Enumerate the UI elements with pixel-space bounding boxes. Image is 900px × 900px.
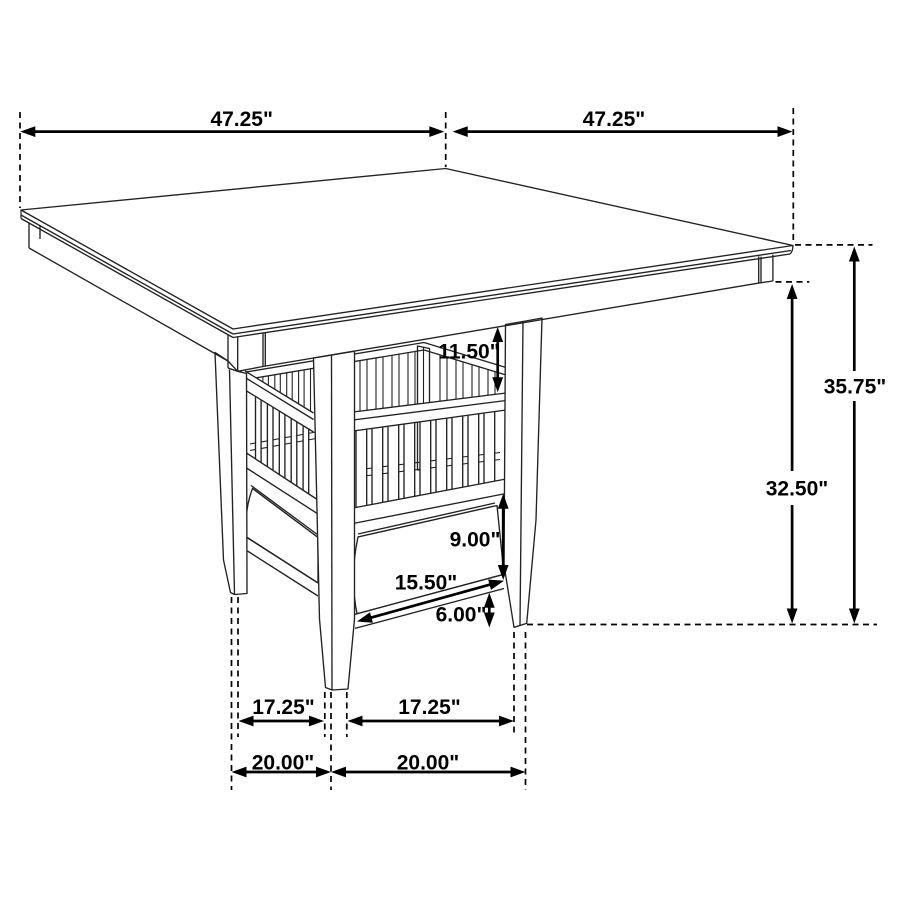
- svg-text:17.25": 17.25": [398, 696, 461, 719]
- svg-text:47.25": 47.25": [583, 108, 646, 131]
- svg-text:6.00": 6.00": [436, 604, 487, 627]
- svg-text:9.00": 9.00": [450, 529, 501, 552]
- svg-text:15.50": 15.50": [395, 572, 458, 595]
- svg-text:20.00": 20.00": [252, 752, 315, 775]
- svg-text:32.50": 32.50": [766, 478, 829, 501]
- svg-text:35.75": 35.75": [824, 376, 887, 399]
- svg-text:47.25": 47.25": [210, 108, 273, 131]
- svg-text:17.25": 17.25": [252, 696, 315, 719]
- svg-text:11.50": 11.50": [438, 341, 499, 364]
- svg-text:20.00": 20.00": [397, 752, 460, 775]
